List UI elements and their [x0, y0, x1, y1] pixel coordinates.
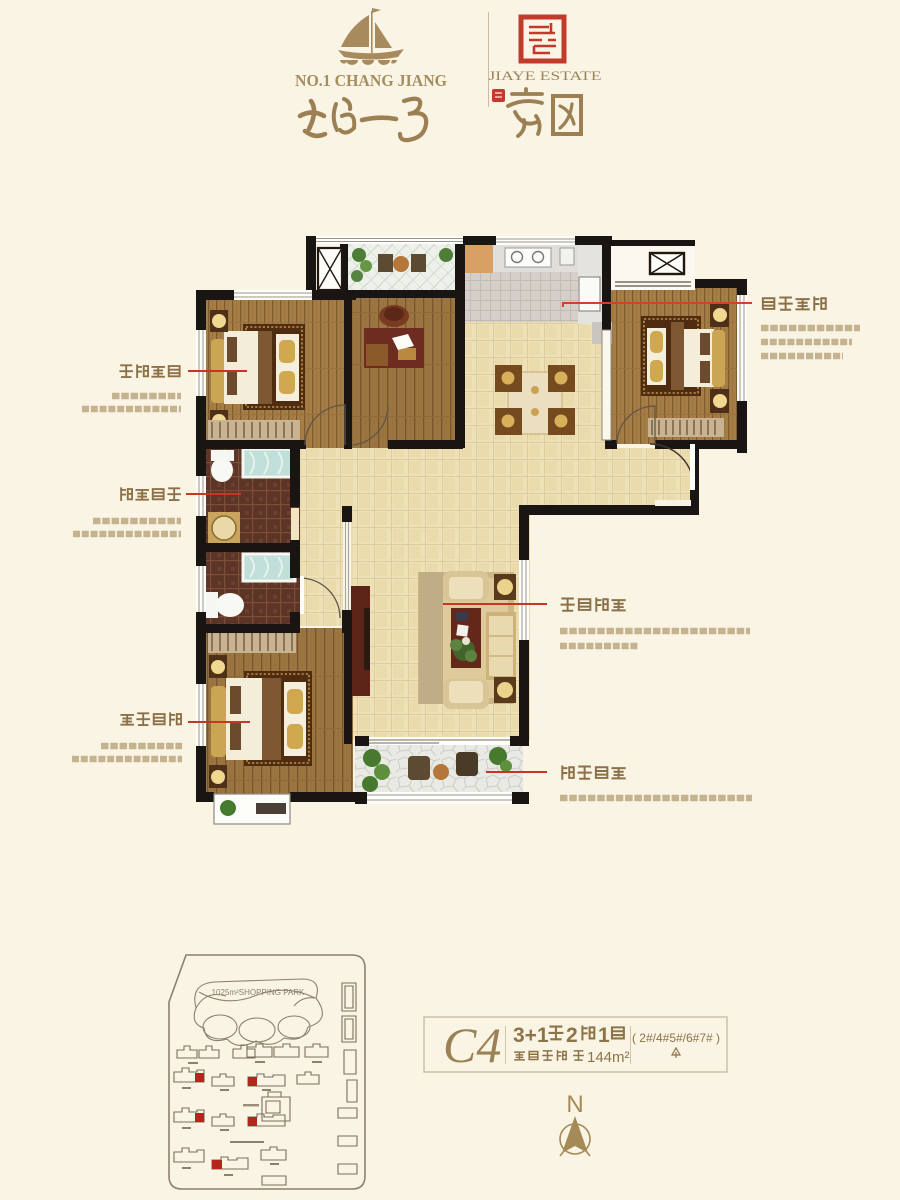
svg-text:144m²: 144m² [587, 1049, 630, 1066]
svg-text:1025m²SHOPPING PARK: 1025m²SHOPPING PARK [212, 988, 305, 997]
svg-text:1: 1 [598, 1024, 610, 1047]
svg-text:JIAYE ESTATE: JIAYE ESTATE [489, 68, 602, 83]
svg-text:3+1: 3+1 [513, 1024, 549, 1047]
svg-text:2: 2 [566, 1024, 578, 1047]
svg-text:C4: C4 [443, 1017, 501, 1073]
svg-text:N: N [566, 1091, 583, 1118]
svg-text:( 2#/4#5#/6#7# ): ( 2#/4#5#/6#7# ) [632, 1031, 720, 1045]
svg-text:NO.1 CHANG JIANG: NO.1 CHANG JIANG [295, 71, 447, 90]
